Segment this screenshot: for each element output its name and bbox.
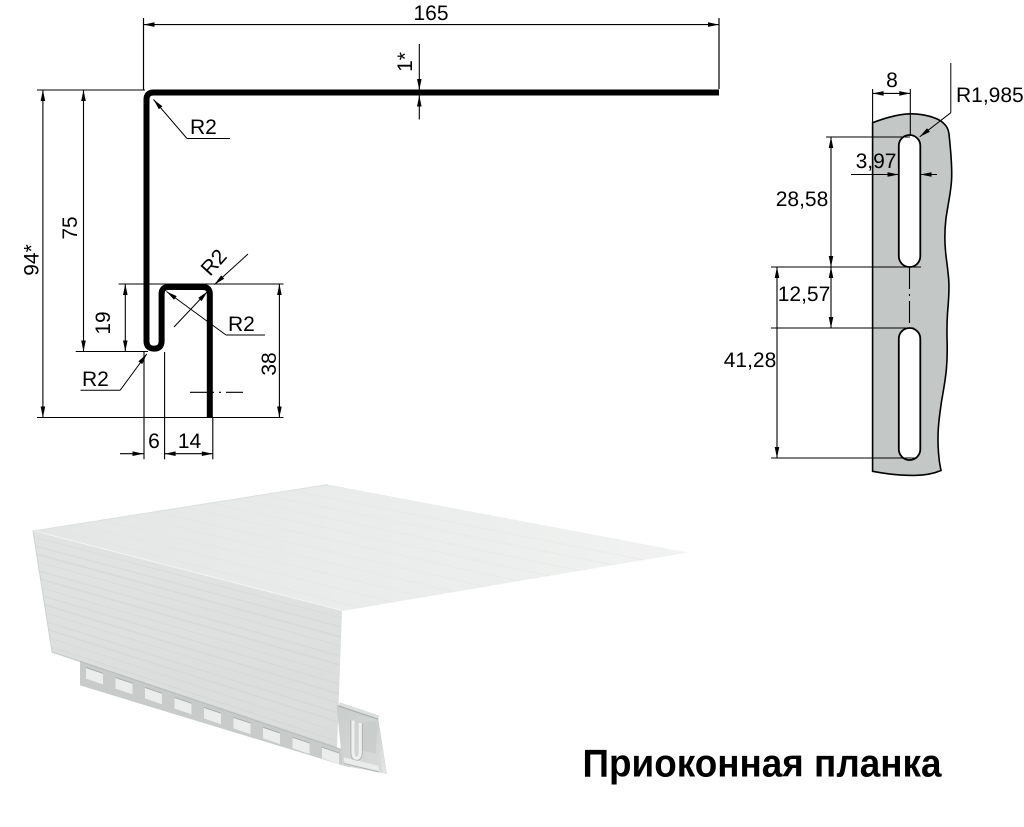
svg-text:165: 165 — [413, 2, 448, 25]
svg-text:12,57: 12,57 — [778, 283, 831, 306]
svg-text:28,58: 28,58 — [776, 188, 829, 211]
svg-text:1*: 1* — [394, 52, 417, 72]
svg-text:R1,985: R1,985 — [956, 84, 1024, 107]
svg-text:14: 14 — [178, 430, 202, 453]
svg-text:38: 38 — [258, 352, 281, 375]
svg-text:94*: 94* — [21, 244, 44, 276]
svg-text:Приоконная планка: Приоконная планка — [583, 743, 942, 786]
svg-text:6: 6 — [148, 430, 160, 453]
svg-text:8: 8 — [886, 69, 898, 92]
svg-text:R2: R2 — [82, 368, 109, 391]
svg-text:3,97: 3,97 — [856, 150, 897, 173]
svg-text:75: 75 — [59, 216, 82, 239]
svg-text:41,28: 41,28 — [724, 349, 777, 372]
svg-text:19: 19 — [92, 311, 115, 334]
svg-text:R2: R2 — [228, 313, 255, 336]
svg-text:R2: R2 — [197, 245, 232, 280]
svg-text:R2: R2 — [190, 116, 217, 139]
